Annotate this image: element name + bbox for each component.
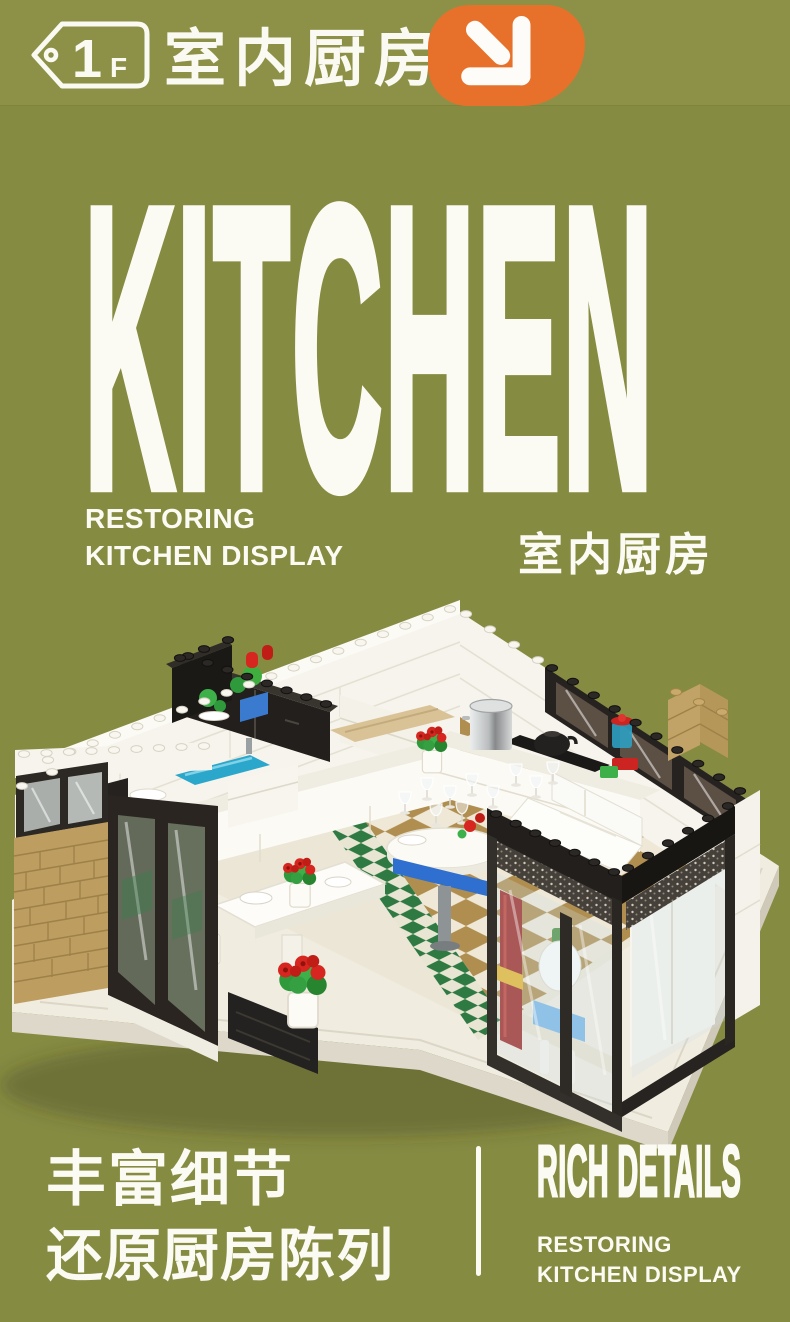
glass-pane-left: [495, 872, 616, 1112]
glass-cabinet-band: [545, 667, 748, 845]
model-plants: [199, 645, 790, 1028]
blue-jar: [611, 714, 633, 748]
model-shadow: [0, 1033, 680, 1137]
cooking-pot: [462, 700, 512, 751]
kettle: [534, 731, 576, 756]
poster-page: 1 F 室内厨房 KITCHEN RESTORING KITCHEN DISPL…: [0, 0, 790, 1322]
hero-subtitle-en-line2: KITCHEN DISPLAY: [85, 537, 344, 574]
model-studs: [16, 606, 745, 876]
footer-en-subtitle-line2: KITCHEN DISPLAY: [537, 1260, 742, 1290]
model-back-right-wall: [460, 612, 760, 1021]
model-upper-cabinets: [166, 641, 432, 772]
footer-divider: [476, 1146, 481, 1276]
tan-brick-wall: [14, 822, 108, 1004]
model-sofa: [472, 758, 642, 872]
model-dining-table: [196, 862, 385, 1074]
floor-tag-number: 1: [72, 29, 102, 89]
footer-zh-line2: 还原厨房陈列: [46, 1218, 394, 1294]
tulip-pot: [199, 645, 273, 722]
blue-bar-table: [393, 858, 495, 898]
glass-pane-right: [632, 844, 726, 1078]
sink: [175, 755, 270, 785]
floor-tag-suffix: F: [110, 52, 127, 83]
floor-tag-icon: 1 F: [28, 16, 156, 94]
display-interior: [495, 890, 615, 1084]
header-band: 1 F 室内厨房: [0, 0, 790, 106]
footer-en-subtitle-line1: RESTORING: [537, 1230, 742, 1260]
model-front-right-display: [487, 806, 735, 1132]
model-back-left-wall: [15, 600, 460, 922]
display-frame: [487, 806, 735, 1132]
footer-zh-block: 丰富细节 还原厨房陈列: [46, 1142, 394, 1294]
wine-goblets: [399, 762, 559, 827]
header-title: 室内厨房: [164, 0, 444, 105]
espresso-machine: [75, 778, 128, 846]
model-base: [12, 655, 779, 1152]
model-floor-checker: [335, 710, 740, 1022]
hero-title: KITCHEN: [84, 150, 655, 550]
model-front-left-wall: [14, 742, 218, 1062]
footer-en-subtitle: RESTORING KITCHEN DISPLAY: [537, 1230, 742, 1290]
glass-door-panel: [108, 795, 218, 1062]
cutting-board: [330, 705, 455, 742]
tan-brick-pillar: [668, 684, 728, 761]
model-floor-green-strip: [308, 778, 505, 1040]
hero-subtitle-zh: 室内厨房: [518, 518, 714, 583]
window-band: [16, 762, 108, 838]
footer-en-title: RICH DETAILS: [537, 1136, 741, 1208]
model-round-table: [387, 762, 559, 951]
model-counter: [60, 700, 660, 897]
arrow-down-right-icon: [446, 13, 566, 99]
footer-zh-line1: 丰富细节: [46, 1142, 394, 1218]
model-floor: [120, 700, 752, 1040]
hero-subtitle-en: RESTORING KITCHEN DISPLAY: [85, 500, 344, 574]
hero-subtitle-en-line1: RESTORING: [85, 500, 344, 537]
arrow-badge: [428, 5, 585, 106]
stove: [505, 735, 610, 772]
